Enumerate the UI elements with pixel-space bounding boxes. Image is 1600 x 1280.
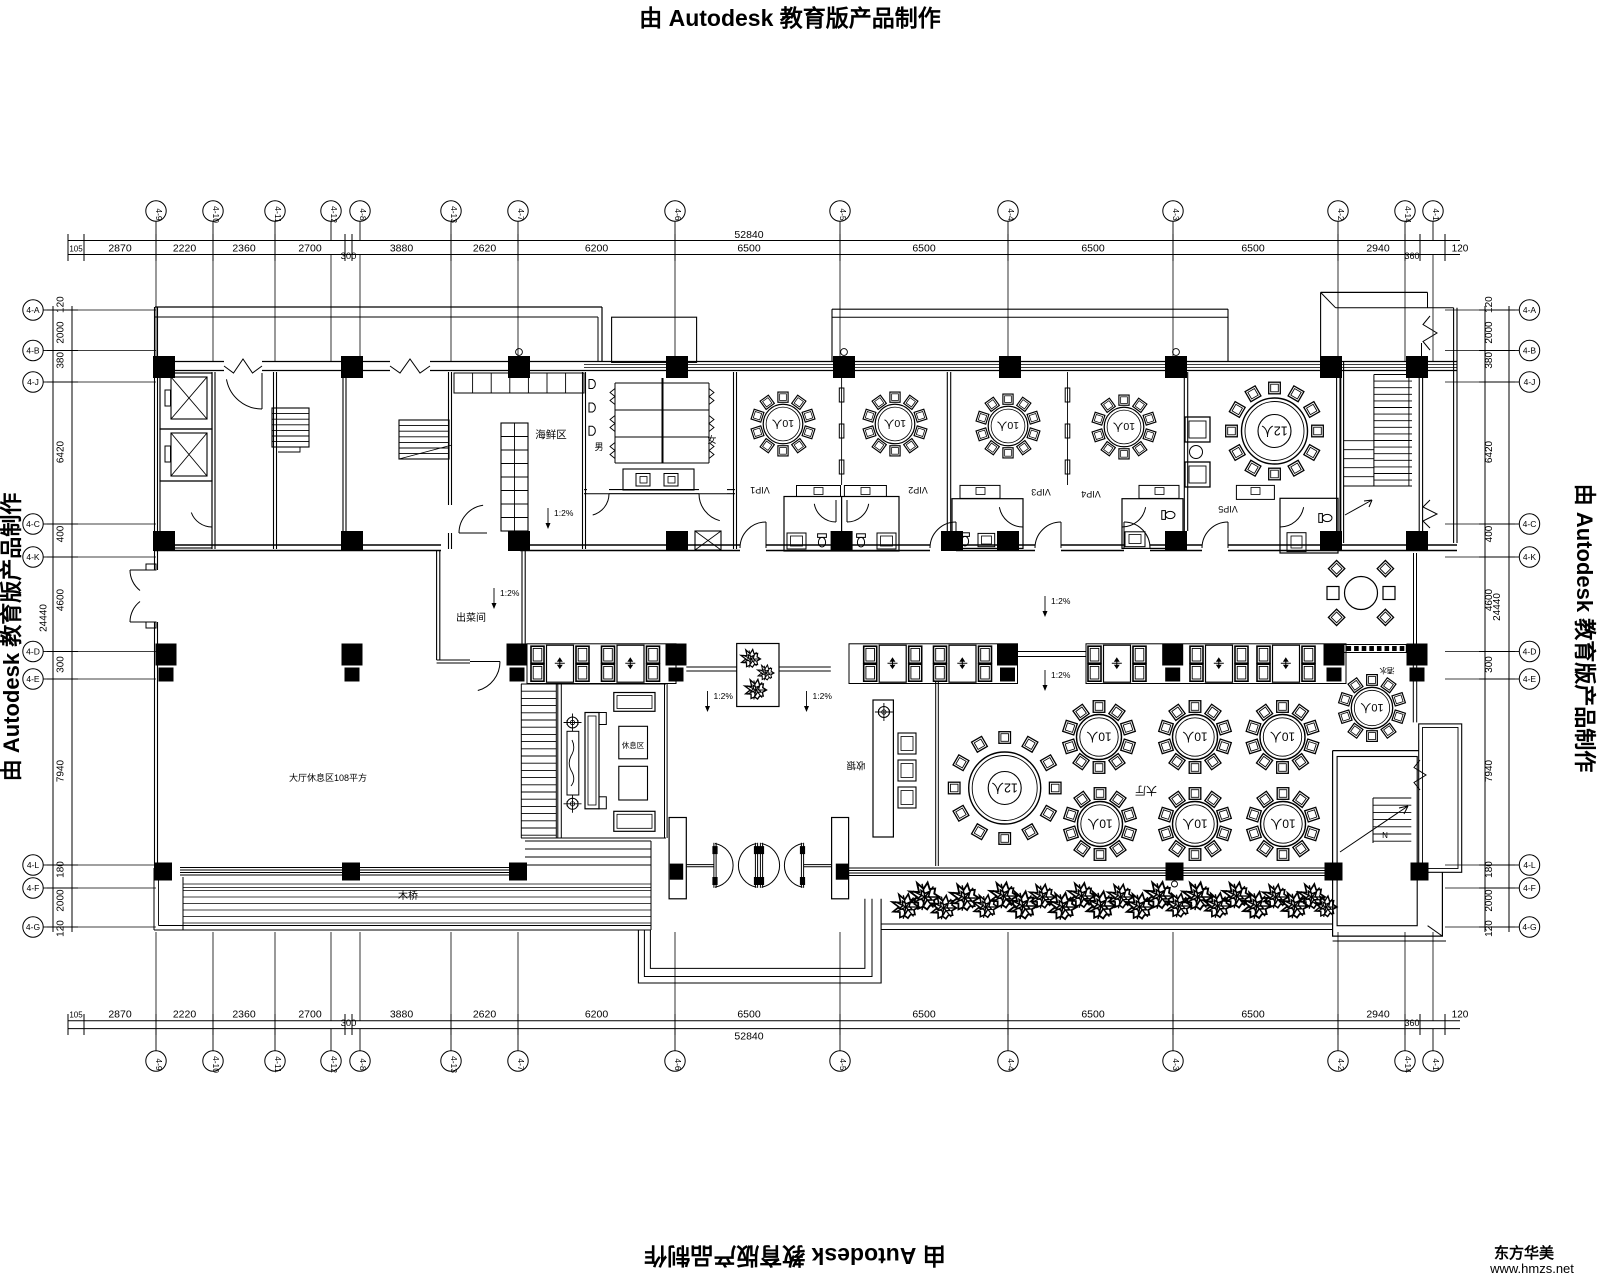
svg-text:6420: 6420 [1484, 440, 1495, 463]
svg-text:由 Autodesk 教育版产品制作: 由 Autodesk 教育版产品制作 [1572, 484, 1597, 772]
svg-text:4-4: 4-4 [1006, 208, 1016, 221]
svg-text:4-8: 4-8 [358, 1058, 368, 1071]
svg-text:1:2%: 1:2% [1051, 670, 1071, 680]
svg-text:由 Autodesk 教育版产品制作: 由 Autodesk 教育版产品制作 [0, 493, 24, 781]
svg-text:300: 300 [341, 1018, 357, 1029]
svg-text:4-D: 4-D [26, 647, 40, 657]
svg-text:360: 360 [1404, 1018, 1419, 1028]
svg-text:2220: 2220 [173, 1009, 197, 1021]
svg-text:4-E: 4-E [26, 674, 40, 684]
svg-text:4-3: 4-3 [1171, 1058, 1181, 1071]
svg-text:VIP2: VIP2 [908, 485, 928, 495]
svg-text:4-6: 4-6 [673, 1058, 683, 1071]
svg-text:2870: 2870 [108, 1009, 132, 1021]
svg-text:6200: 6200 [585, 243, 609, 255]
svg-text:120: 120 [1484, 296, 1495, 313]
svg-text:3880: 3880 [390, 243, 414, 255]
svg-text:由 Autodesk 教育版产品制作: 由 Autodesk 教育版产品制作 [644, 1243, 946, 1269]
svg-text:VIP3: VIP3 [1031, 487, 1051, 497]
svg-text:300: 300 [341, 251, 357, 262]
svg-text:105: 105 [69, 245, 83, 254]
svg-text:6500: 6500 [1081, 1009, 1105, 1021]
svg-text:4-B: 4-B [26, 346, 40, 356]
svg-text:男: 男 [594, 442, 603, 452]
svg-text:7940: 7940 [56, 759, 67, 782]
svg-text:2620: 2620 [473, 243, 497, 255]
svg-text:4-5: 4-5 [838, 1058, 848, 1071]
svg-text:180: 180 [1484, 861, 1495, 878]
svg-text:6500: 6500 [1241, 1009, 1265, 1021]
svg-text:4-C: 4-C [1523, 519, 1537, 529]
svg-text:4-12: 4-12 [329, 1056, 339, 1073]
svg-text:2000: 2000 [1484, 321, 1495, 344]
svg-text:4-F: 4-F [1523, 883, 1536, 893]
svg-text:酒水: 酒水 [1379, 666, 1395, 676]
svg-text:4-K: 4-K [26, 552, 40, 562]
svg-text:4-7: 4-7 [516, 1058, 526, 1071]
svg-text:120: 120 [1452, 1010, 1469, 1021]
svg-text:4-J: 4-J [27, 377, 39, 387]
svg-text:4-12: 4-12 [329, 206, 339, 223]
svg-text:1:2%: 1:2% [813, 691, 833, 701]
svg-text:2620: 2620 [473, 1009, 497, 1021]
svg-text:海鲜区: 海鲜区 [535, 428, 567, 441]
svg-text:4-D: 4-D [1523, 647, 1537, 657]
svg-text:400: 400 [56, 525, 67, 542]
svg-text:4-C: 4-C [26, 519, 40, 529]
svg-text:4-L: 4-L [1523, 860, 1536, 870]
svg-text:2000: 2000 [1484, 889, 1495, 912]
svg-text:4-2: 4-2 [1336, 1058, 1346, 1071]
svg-text:1:2%: 1:2% [1051, 596, 1071, 606]
svg-text:120: 120 [56, 296, 67, 313]
svg-text:由 Autodesk 教育版产品制作: 由 Autodesk 教育版产品制作 [639, 5, 941, 31]
svg-text:24440: 24440 [1492, 593, 1503, 621]
svg-text:180: 180 [56, 861, 67, 878]
svg-text:4-E: 4-E [1523, 674, 1537, 684]
svg-text:VIP4: VIP4 [1081, 489, 1101, 499]
svg-text:300: 300 [56, 656, 67, 673]
svg-text:4600: 4600 [56, 588, 67, 611]
svg-text:VIP1: VIP1 [750, 485, 770, 495]
svg-text:2870: 2870 [108, 243, 132, 255]
svg-text:4-J: 4-J [1524, 377, 1536, 387]
svg-text:4-1: 4-1 [1431, 1058, 1441, 1071]
svg-text:4-6: 4-6 [673, 208, 683, 221]
svg-text:收银: 收银 [846, 759, 866, 771]
svg-text:2700: 2700 [298, 1009, 322, 1021]
svg-text:2360: 2360 [232, 1009, 256, 1021]
svg-text:4-13: 4-13 [449, 206, 459, 223]
svg-text:大厅休息区108平方: 大厅休息区108平方 [289, 772, 367, 783]
svg-text:东方华美: 东方华美 [1494, 1244, 1555, 1262]
svg-text:380: 380 [56, 352, 67, 369]
svg-text:4-A: 4-A [1523, 305, 1537, 315]
svg-text:www.hmzs.net: www.hmzs.net [1489, 1261, 1574, 1276]
svg-text:2000: 2000 [56, 321, 67, 344]
svg-text:4-14: 4-14 [1403, 206, 1413, 223]
svg-text:120: 120 [56, 920, 67, 937]
svg-text:VIP5: VIP5 [1218, 504, 1238, 514]
svg-text:木桥: 木桥 [398, 890, 418, 902]
svg-text:4-1: 4-1 [1431, 208, 1441, 221]
svg-text:4-B: 4-B [1523, 346, 1537, 356]
svg-text:24440: 24440 [39, 604, 50, 632]
svg-text:6500: 6500 [912, 243, 936, 255]
svg-text:6200: 6200 [585, 1009, 609, 1021]
svg-text:4-4: 4-4 [1006, 1058, 1016, 1071]
svg-text:6420: 6420 [56, 440, 67, 463]
svg-text:1:2%: 1:2% [554, 508, 574, 518]
svg-text:52840: 52840 [734, 229, 763, 241]
svg-text:2000: 2000 [56, 889, 67, 912]
svg-text:4-G: 4-G [26, 922, 40, 932]
svg-text:4-7: 4-7 [516, 208, 526, 221]
svg-text:2220: 2220 [173, 243, 197, 255]
svg-text:4-8: 4-8 [358, 208, 368, 221]
svg-text:4-9: 4-9 [154, 1058, 164, 1071]
svg-text:4-10: 4-10 [211, 1056, 221, 1073]
svg-text:120: 120 [1452, 244, 1469, 255]
svg-text:休息区: 休息区 [622, 740, 645, 750]
svg-text:女: 女 [707, 434, 716, 445]
svg-text:6500: 6500 [1081, 243, 1105, 255]
svg-text:6500: 6500 [737, 243, 761, 255]
svg-text:4-L: 4-L [27, 860, 40, 870]
svg-text:4-14: 4-14 [1403, 1056, 1413, 1073]
svg-text:1:2%: 1:2% [500, 588, 520, 598]
svg-text:4-G: 4-G [1522, 922, 1536, 932]
svg-text:1:2%: 1:2% [714, 691, 734, 701]
svg-text:105: 105 [69, 1011, 83, 1020]
svg-text:6500: 6500 [737, 1009, 761, 1021]
svg-text:2700: 2700 [298, 243, 322, 255]
svg-text:4-11: 4-11 [273, 206, 283, 223]
svg-text:6500: 6500 [912, 1009, 936, 1021]
svg-text:4-A: 4-A [26, 305, 40, 315]
svg-text:N: N [1382, 831, 1388, 840]
svg-text:120: 120 [1484, 920, 1495, 937]
svg-text:52840: 52840 [734, 1031, 763, 1043]
svg-text:380: 380 [1484, 352, 1495, 369]
svg-text:6500: 6500 [1241, 243, 1265, 255]
svg-text:2940: 2940 [1366, 243, 1390, 255]
svg-text:4-9: 4-9 [154, 208, 164, 221]
svg-text:大厅: 大厅 [1135, 784, 1157, 798]
svg-text:300: 300 [1484, 656, 1495, 673]
svg-text:360: 360 [1404, 251, 1419, 261]
svg-text:4-5: 4-5 [838, 208, 848, 221]
svg-text:4-2: 4-2 [1336, 208, 1346, 221]
svg-text:7940: 7940 [1484, 759, 1495, 782]
svg-text:4-F: 4-F [27, 883, 40, 893]
svg-text:4-11: 4-11 [273, 1056, 283, 1073]
svg-text:2940: 2940 [1366, 1009, 1390, 1021]
svg-text:4-3: 4-3 [1171, 208, 1181, 221]
svg-text:3880: 3880 [390, 1009, 414, 1021]
svg-text:出菜间: 出菜间 [456, 611, 486, 624]
svg-text:2360: 2360 [232, 243, 256, 255]
svg-text:4-10: 4-10 [211, 206, 221, 223]
svg-text:400: 400 [1484, 525, 1495, 542]
svg-text:4-13: 4-13 [449, 1056, 459, 1073]
svg-text:4-K: 4-K [1523, 552, 1537, 562]
